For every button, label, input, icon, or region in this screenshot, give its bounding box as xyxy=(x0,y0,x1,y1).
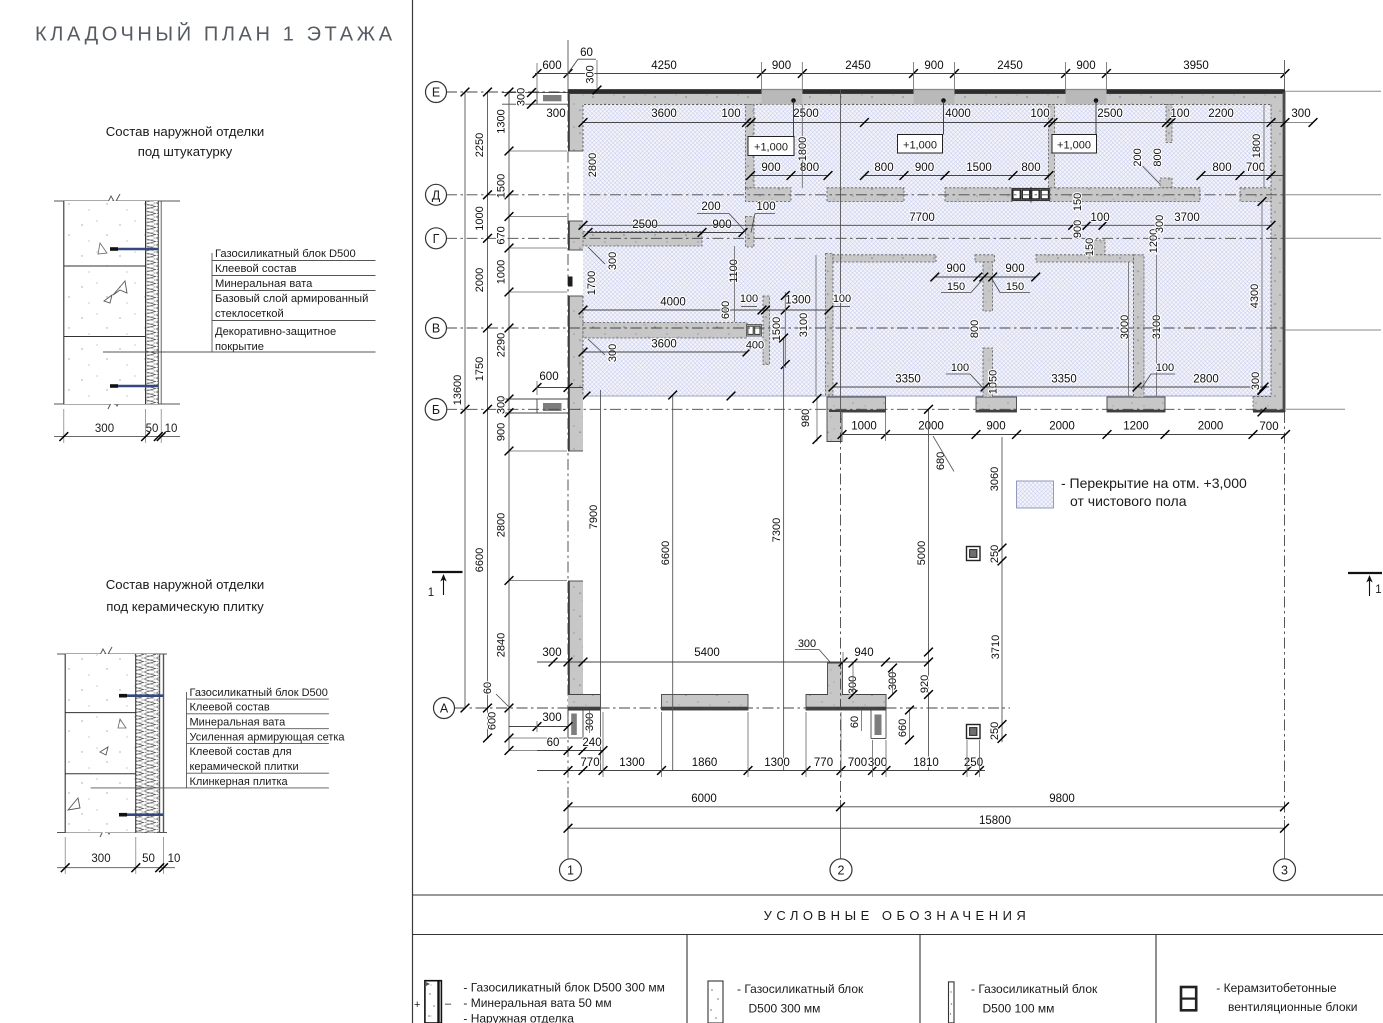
svg-text:1050: 1050 xyxy=(988,370,1000,394)
svg-text:Газосиликатный блок D500: Газосиликатный блок D500 xyxy=(215,248,356,260)
svg-text:2800: 2800 xyxy=(587,153,599,177)
svg-text:900: 900 xyxy=(986,421,1005,433)
svg-text:УСЛОВНЫЕ ОБОЗНАЧЕНИЯ: УСЛОВНЫЕ ОБОЗНАЧЕНИЯ xyxy=(764,908,1031,923)
svg-text:стеклосеткой: стеклосеткой xyxy=(215,308,284,320)
svg-text:600: 600 xyxy=(539,371,558,383)
svg-text:800: 800 xyxy=(969,320,981,338)
svg-text:2500: 2500 xyxy=(1097,108,1123,120)
svg-text:2: 2 xyxy=(838,863,845,877)
svg-text:Д: Д xyxy=(432,188,441,202)
svg-text:1300: 1300 xyxy=(619,757,645,769)
svg-text:920: 920 xyxy=(919,675,931,693)
svg-text:- Газосиликатный блок: - Газосиликатный блок xyxy=(737,982,864,996)
svg-text:Е: Е xyxy=(432,86,440,100)
svg-text:150: 150 xyxy=(1072,193,1084,211)
svg-text:240: 240 xyxy=(582,737,601,749)
svg-text:1500: 1500 xyxy=(966,162,992,174)
svg-text:980: 980 xyxy=(800,409,812,427)
svg-text:300: 300 xyxy=(1291,108,1310,120)
svg-text:Газосиликатный блок D500: Газосиликатный блок D500 xyxy=(190,687,328,699)
svg-text:150: 150 xyxy=(1006,281,1024,293)
svg-text:- Газосиликатный блок: - Газосиликатный блок xyxy=(971,982,1098,996)
svg-text:1500: 1500 xyxy=(771,317,783,341)
svg-text:5000: 5000 xyxy=(916,541,928,565)
svg-text:100: 100 xyxy=(756,201,775,213)
svg-text:1200: 1200 xyxy=(1123,421,1149,433)
svg-text:- Газосиликатный блок D500 30: - Газосиликатный блок D500 300 мм xyxy=(463,981,664,995)
svg-text:770: 770 xyxy=(580,757,599,769)
svg-text:В: В xyxy=(432,322,440,336)
svg-text:- Минеральная вата 50 мм: - Минеральная вата 50 мм xyxy=(463,996,611,1010)
svg-text:Минеральная вата: Минеральная вата xyxy=(190,716,287,728)
svg-text:Клеевой состав для: Клеевой состав для xyxy=(190,746,292,758)
svg-text:Клеевой состав: Клеевой состав xyxy=(215,263,297,275)
svg-text:1: 1 xyxy=(428,587,434,599)
svg-text:940: 940 xyxy=(854,647,873,659)
svg-text:150: 150 xyxy=(947,281,965,293)
svg-text:от чистового пола: от чистового пола xyxy=(1070,493,1187,509)
svg-text:Состав наружной отделки: Состав наружной отделки xyxy=(106,577,264,592)
svg-text:900: 900 xyxy=(946,263,965,275)
svg-text:10: 10 xyxy=(165,423,178,435)
svg-text:770: 770 xyxy=(814,757,833,769)
svg-text:покрытие: покрытие xyxy=(215,341,264,353)
svg-text:300: 300 xyxy=(607,252,619,270)
svg-text:3710: 3710 xyxy=(990,635,1002,659)
svg-text:–: – xyxy=(445,998,452,1010)
svg-text:600: 600 xyxy=(487,712,499,730)
svg-text:300: 300 xyxy=(607,344,619,362)
svg-text:300: 300 xyxy=(798,638,816,650)
svg-text:Базовый слой армированный: Базовый слой армированный xyxy=(215,293,368,305)
svg-text:700: 700 xyxy=(1246,162,1265,174)
svg-text:400: 400 xyxy=(746,340,764,352)
svg-text:Б: Б xyxy=(432,403,440,417)
svg-text:600: 600 xyxy=(542,60,561,72)
svg-text:6600: 6600 xyxy=(660,541,672,565)
svg-text:- Керамзитобетонные: - Керамзитобетонные xyxy=(1216,981,1337,995)
svg-text:900: 900 xyxy=(1005,263,1024,275)
svg-text:вентиляционные блоки: вентиляционные блоки xyxy=(1228,1000,1357,1014)
svg-text:3350: 3350 xyxy=(895,374,921,386)
svg-text:3060: 3060 xyxy=(989,467,1001,491)
svg-text:60: 60 xyxy=(580,47,593,59)
svg-text:2000: 2000 xyxy=(1049,421,1075,433)
svg-text:700: 700 xyxy=(1259,421,1278,433)
svg-text:4000: 4000 xyxy=(660,297,686,309)
svg-text:1: 1 xyxy=(567,863,574,877)
svg-text:700: 700 xyxy=(848,757,867,769)
svg-text:5400: 5400 xyxy=(694,647,720,659)
svg-text:2450: 2450 xyxy=(845,60,871,72)
svg-text:300: 300 xyxy=(868,757,887,769)
svg-text:300: 300 xyxy=(546,108,565,120)
svg-text:+: + xyxy=(414,999,420,1011)
svg-text:3350: 3350 xyxy=(1051,374,1077,386)
svg-text:2000: 2000 xyxy=(918,421,944,433)
svg-text:60: 60 xyxy=(547,737,560,749)
svg-text:100: 100 xyxy=(1170,108,1189,120)
svg-text:под керамическую плитку: под керамическую плитку xyxy=(106,599,264,614)
svg-text:900: 900 xyxy=(761,162,780,174)
svg-text:керамической плитки: керамической плитки xyxy=(190,761,299,773)
svg-text:2250: 2250 xyxy=(474,133,486,157)
svg-text:3100: 3100 xyxy=(798,313,810,337)
svg-text:+1,000: +1,000 xyxy=(903,140,937,152)
svg-text:+1,000: +1,000 xyxy=(754,142,788,154)
svg-text:3000: 3000 xyxy=(1119,315,1131,339)
svg-text:Минеральная вата: Минеральная вата xyxy=(215,278,313,290)
svg-text:300: 300 xyxy=(95,423,114,435)
svg-text:100: 100 xyxy=(1156,362,1174,374)
svg-text:Клинкерная плитка: Клинкерная плитка xyxy=(190,776,289,788)
svg-text:100: 100 xyxy=(833,293,851,305)
svg-text:1000: 1000 xyxy=(496,260,508,284)
svg-text:800: 800 xyxy=(1152,148,1164,166)
svg-text:КЛАДОЧНЫЙ ПЛАН 1 ЭТАЖА: КЛАДОЧНЫЙ ПЛАН 1 ЭТАЖА xyxy=(35,22,396,46)
svg-text:2290: 2290 xyxy=(496,333,508,357)
svg-text:900: 900 xyxy=(1072,220,1084,238)
svg-text:15800: 15800 xyxy=(979,815,1011,827)
svg-text:1100: 1100 xyxy=(728,259,740,283)
svg-text:1800: 1800 xyxy=(1251,134,1263,158)
svg-text:2000: 2000 xyxy=(1198,421,1224,433)
svg-text:3950: 3950 xyxy=(1183,60,1209,72)
svg-text:2500: 2500 xyxy=(793,108,819,120)
svg-text:4000: 4000 xyxy=(945,108,971,120)
svg-text:60: 60 xyxy=(849,716,861,728)
svg-text:D500 100 мм: D500 100 мм xyxy=(983,1002,1055,1016)
svg-text:3600: 3600 xyxy=(651,108,677,120)
svg-text:3100: 3100 xyxy=(1151,315,1163,339)
svg-text:1300: 1300 xyxy=(785,295,811,307)
svg-text:100: 100 xyxy=(1030,108,1049,120)
svg-text:13600: 13600 xyxy=(452,375,464,406)
svg-text:100: 100 xyxy=(721,108,740,120)
svg-text:6000: 6000 xyxy=(691,793,717,805)
svg-text:300: 300 xyxy=(542,647,561,659)
svg-text:50: 50 xyxy=(146,423,159,435)
svg-text:50: 50 xyxy=(142,853,155,865)
svg-text:800: 800 xyxy=(800,162,819,174)
svg-text:680: 680 xyxy=(935,452,947,470)
svg-text:2800: 2800 xyxy=(496,513,508,537)
svg-text:1700: 1700 xyxy=(586,271,598,295)
svg-text:6600: 6600 xyxy=(474,548,486,572)
svg-text:600: 600 xyxy=(720,301,732,319)
svg-text:660: 660 xyxy=(897,719,909,737)
svg-text:300: 300 xyxy=(585,65,597,83)
svg-text:1000: 1000 xyxy=(851,421,877,433)
svg-text:3600: 3600 xyxy=(651,339,677,351)
svg-text:1000: 1000 xyxy=(474,206,486,230)
svg-text:7900: 7900 xyxy=(588,505,600,529)
svg-text:3700: 3700 xyxy=(1174,212,1200,224)
svg-text:300: 300 xyxy=(1154,215,1166,233)
svg-text:- Наружная отделка: - Наружная отделка xyxy=(463,1012,574,1023)
svg-text:+1,000: +1,000 xyxy=(1057,140,1091,152)
svg-text:250: 250 xyxy=(989,545,1001,563)
svg-text:900: 900 xyxy=(924,60,943,72)
svg-text:200: 200 xyxy=(701,201,720,213)
svg-text:300: 300 xyxy=(584,713,596,731)
svg-text:2000: 2000 xyxy=(474,268,486,292)
svg-text:7700: 7700 xyxy=(909,212,935,224)
svg-text:7300: 7300 xyxy=(771,518,783,542)
svg-text:2450: 2450 xyxy=(997,60,1023,72)
svg-text:670: 670 xyxy=(496,226,508,244)
svg-text:2800: 2800 xyxy=(1193,374,1219,386)
svg-text:100: 100 xyxy=(740,293,758,305)
svg-text:250: 250 xyxy=(989,722,1001,740)
svg-text:9800: 9800 xyxy=(1049,793,1075,805)
svg-text:- Перекрытие на отм. +3,000: - Перекрытие на отм. +3,000 xyxy=(1061,475,1247,491)
svg-text:3: 3 xyxy=(1281,863,1288,877)
svg-text:4250: 4250 xyxy=(651,60,677,72)
svg-text:300: 300 xyxy=(496,396,508,414)
svg-text:10: 10 xyxy=(168,853,181,865)
svg-text:1810: 1810 xyxy=(913,757,939,769)
svg-text:100: 100 xyxy=(951,362,969,374)
svg-text:300: 300 xyxy=(887,672,899,690)
svg-text:60: 60 xyxy=(482,682,494,694)
svg-text:А: А xyxy=(440,702,449,716)
svg-text:под штукатурку: под штукатурку xyxy=(138,144,233,159)
svg-text:300: 300 xyxy=(1250,372,1262,390)
svg-text:4300: 4300 xyxy=(1249,284,1261,308)
svg-text:Усиленная армирующая сетка: Усиленная армирующая сетка xyxy=(190,731,346,743)
svg-text:Состав наружной отделки: Состав наружной отделки xyxy=(106,124,264,139)
svg-text:1300: 1300 xyxy=(496,109,508,133)
svg-text:100: 100 xyxy=(1090,212,1109,224)
svg-text:800: 800 xyxy=(1021,162,1040,174)
svg-text:900: 900 xyxy=(496,423,508,441)
svg-text:200: 200 xyxy=(1132,148,1144,166)
svg-text:2200: 2200 xyxy=(1208,108,1234,120)
svg-text:900: 900 xyxy=(915,162,934,174)
svg-text:1500: 1500 xyxy=(496,174,508,198)
svg-text:800: 800 xyxy=(1212,162,1231,174)
svg-text:1860: 1860 xyxy=(692,757,718,769)
svg-text:150: 150 xyxy=(1084,238,1096,256)
svg-text:1: 1 xyxy=(1375,584,1381,596)
svg-text:900: 900 xyxy=(1076,60,1095,72)
svg-text:Г: Г xyxy=(433,232,440,246)
svg-text:800: 800 xyxy=(874,162,893,174)
svg-text:D500 300 мм: D500 300 мм xyxy=(749,1002,821,1016)
svg-text:1750: 1750 xyxy=(474,357,486,381)
svg-text:2840: 2840 xyxy=(496,633,508,657)
svg-text:1800: 1800 xyxy=(797,137,809,161)
svg-text:300: 300 xyxy=(516,88,528,106)
svg-text:1300: 1300 xyxy=(764,757,790,769)
svg-text:Декоративно-защитное: Декоративно-защитное xyxy=(215,326,336,338)
svg-text:Клеевой состав: Клеевой состав xyxy=(190,702,270,714)
svg-text:300: 300 xyxy=(91,853,110,865)
svg-text:300: 300 xyxy=(542,712,561,724)
svg-text:900: 900 xyxy=(772,60,791,72)
